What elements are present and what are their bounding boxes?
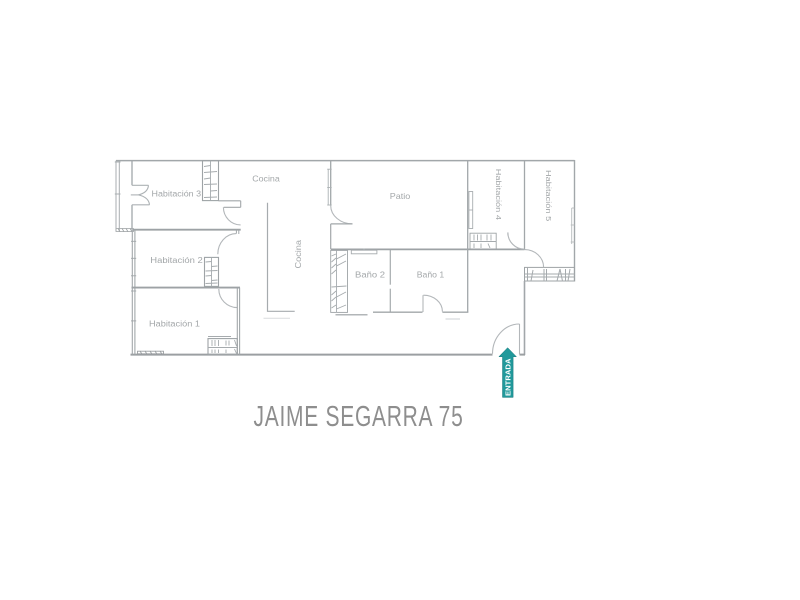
svg-text:Habitación 2: Habitación 2 [150, 256, 203, 265]
svg-text:Baño 1: Baño 1 [417, 270, 445, 279]
svg-text:Cocina: Cocina [294, 240, 303, 269]
svg-text:JAIME SEGARRA 75: JAIME SEGARRA 75 [254, 401, 464, 433]
svg-text:Habitación 4: Habitación 4 [494, 169, 503, 220]
svg-text:Habitación 1: Habitación 1 [149, 319, 201, 328]
svg-text:Habitación 3: Habitación 3 [152, 190, 202, 199]
svg-text:Baño 2: Baño 2 [355, 270, 386, 279]
svg-text:Patio: Patio [390, 192, 411, 201]
svg-text:ENTRADA: ENTRADA [506, 359, 513, 397]
svg-text:Habitación 5: Habitación 5 [544, 170, 553, 221]
svg-text:Cocina: Cocina [252, 174, 280, 183]
